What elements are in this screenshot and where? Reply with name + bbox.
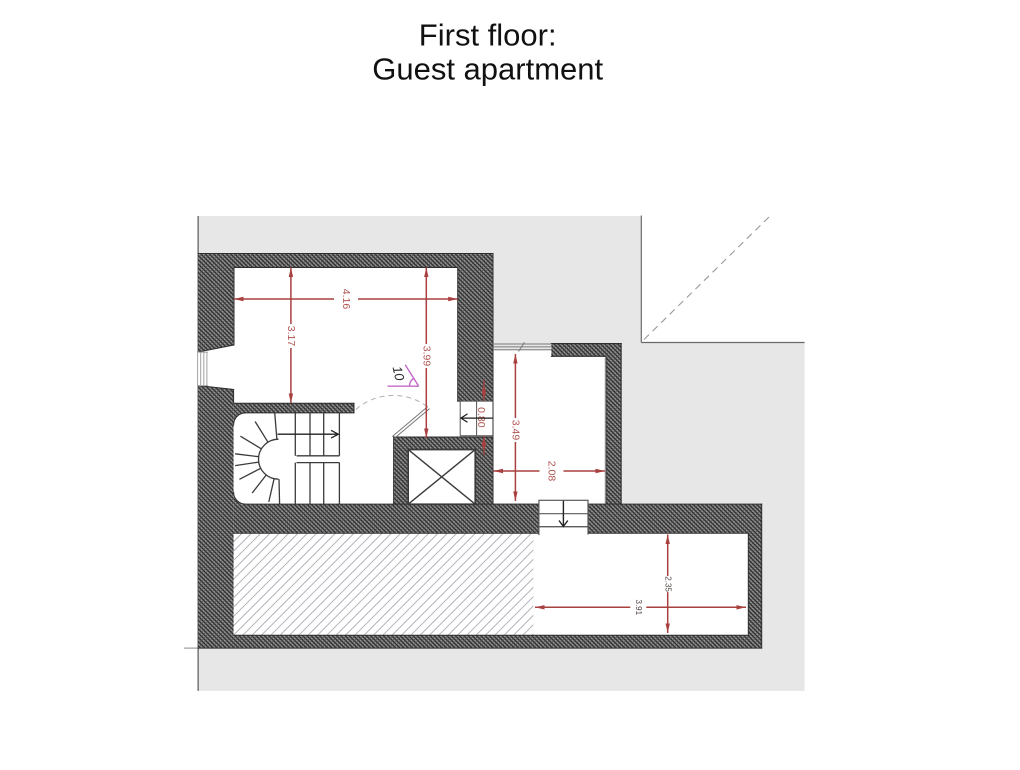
svg-text:4.16: 4.16 <box>340 289 352 310</box>
svg-text:2.08: 2.08 <box>546 461 558 482</box>
svg-text:3.91: 3.91 <box>634 600 643 616</box>
svg-text:Guest apartment: Guest apartment <box>372 51 603 86</box>
svg-text:2.35: 2.35 <box>664 576 673 592</box>
svg-text:3.49: 3.49 <box>510 420 522 441</box>
svg-text:0.80: 0.80 <box>475 407 487 428</box>
svg-text:3.17: 3.17 <box>285 326 297 347</box>
svg-text:First floor:: First floor: <box>419 17 557 52</box>
svg-text:3.99: 3.99 <box>421 346 433 367</box>
